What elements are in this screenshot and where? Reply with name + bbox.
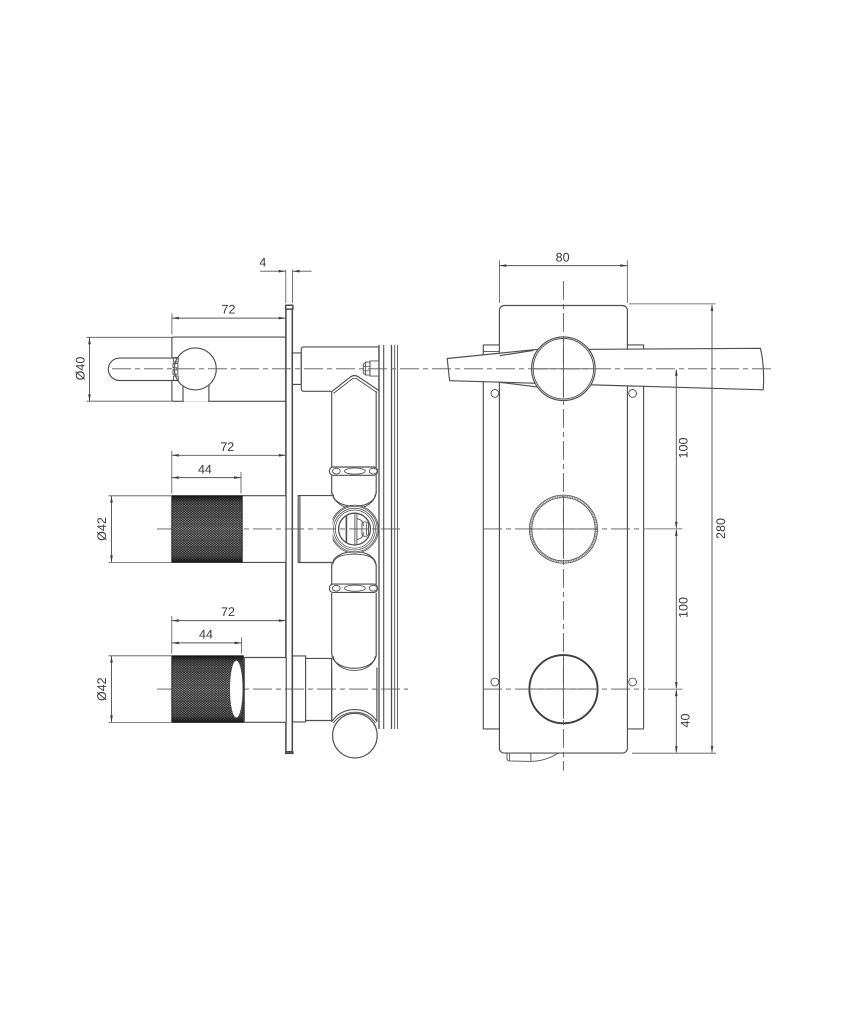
svg-text:Ø42: Ø42: [95, 517, 109, 541]
svg-text:72: 72: [222, 303, 236, 317]
svg-text:4: 4: [259, 256, 266, 270]
svg-text:44: 44: [198, 462, 212, 476]
svg-text:100: 100: [677, 597, 691, 618]
svg-text:80: 80: [556, 250, 570, 264]
svg-text:280: 280: [714, 518, 728, 539]
svg-text:100: 100: [677, 438, 691, 459]
svg-text:Ø40: Ø40: [74, 357, 88, 381]
svg-text:44: 44: [199, 628, 213, 642]
svg-text:40: 40: [679, 714, 693, 728]
svg-text:72: 72: [220, 440, 234, 454]
svg-text:Ø42: Ø42: [95, 677, 109, 701]
svg-text:72: 72: [221, 605, 235, 619]
